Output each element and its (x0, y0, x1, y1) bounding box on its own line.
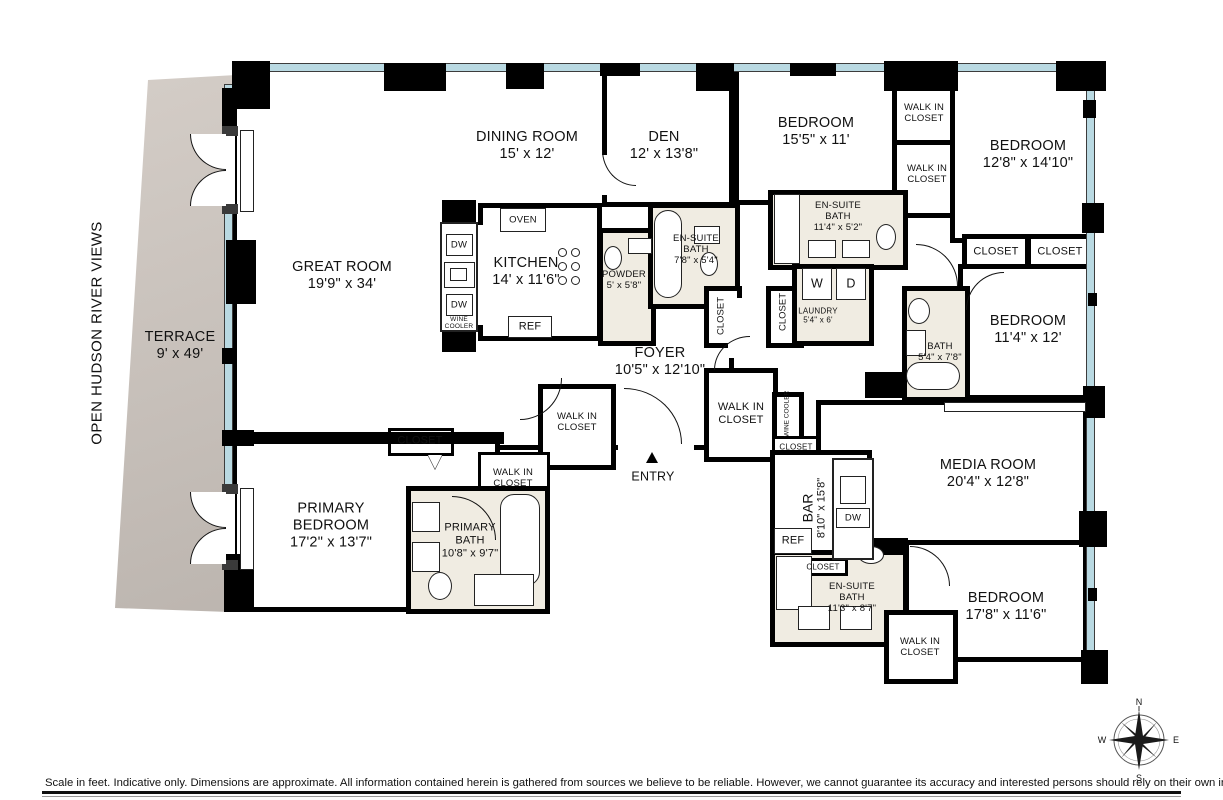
bathtub-icon (500, 494, 540, 586)
closet-label: CLOSET (779, 293, 790, 331)
room-dims: 7'8" x 5'4" (667, 256, 725, 267)
room-dims: 11'4" x 5'2" (805, 223, 871, 234)
room-name: TERRACE (145, 329, 216, 346)
dining-room-label: DINING ROOM 15' x 12' (476, 129, 578, 163)
room-dims: 11'4" x 12' (990, 330, 1066, 347)
room-dims: 5'4" x 6' (798, 316, 838, 325)
laundry-label: LAUNDRY 5'4" x 6' (798, 307, 838, 326)
walk-in-closet-label: WALK IN CLOSET (903, 163, 951, 185)
wall-segment (1083, 386, 1105, 418)
room-name: BEDROOM (990, 313, 1066, 330)
room-name: EN-SUITE BATH (667, 233, 725, 255)
bedroom-4-label: BEDROOM 17'8" x 11'6" (965, 590, 1046, 624)
wine-cooler-label: WINE COOLER (785, 397, 792, 437)
closet-label: CLOSET (717, 297, 728, 335)
wall-segment (1083, 100, 1096, 118)
terrace-door-panel (240, 130, 254, 212)
dw-label: DW (451, 299, 467, 310)
shower-icon (774, 194, 800, 264)
wall-segment (442, 200, 476, 224)
room-name: MEDIA ROOM (940, 457, 1036, 474)
stove-burner-icon (571, 248, 580, 257)
primary-bath-label: PRIMARY BATH 10'8" x 9'7" (435, 522, 505, 561)
bedroom-1-label: BEDROOM 15'5" x 11' (778, 115, 854, 149)
door-arc (916, 244, 958, 286)
compass-east: E (1173, 735, 1179, 745)
oven-label: OVEN (509, 214, 537, 225)
den-label: DEN 12' x 13'8" (630, 129, 699, 163)
ensuite-bath-den-label: EN-SUITE BATH 7'8" x 5'4" (667, 233, 725, 267)
bath-3-label: BATH 5'4" x 7'8" (918, 341, 962, 363)
powder-label: POWDER 5' x 5'8" (602, 269, 646, 291)
wall-segment (696, 63, 734, 91)
room-name: PRIMARY BEDROOM (266, 500, 396, 534)
entry-arrow-icon (646, 452, 658, 463)
room-name: POWDER (602, 269, 646, 280)
entry-label: ENTRY (631, 470, 674, 485)
footer-rule-light (42, 796, 1181, 797)
bar-label: BAR 8'10" x 15'8" (800, 478, 829, 538)
terrace-door-panel (240, 488, 254, 570)
room-name: BEDROOM (778, 115, 854, 132)
room-name: EN-SUITE BATH (820, 581, 884, 603)
room-dims: 12' x 13'8" (630, 146, 699, 163)
room-name: DEN (630, 129, 699, 146)
walk-in-closet-label: WALK IN CLOSET (482, 467, 544, 489)
ensuite-bath-4-label: EN-SUITE BATH 11'3" x 8'7" (820, 581, 884, 615)
footer-rule-dark (42, 791, 1181, 794)
compass-north: N (1136, 698, 1143, 707)
closet-label: CLOSET (397, 435, 442, 448)
toilet-icon (428, 572, 452, 600)
room-name: FOYER (615, 345, 705, 362)
disclaimer-text: Scale in feet. Indicative only. Dimensio… (45, 777, 1223, 789)
wall-segment (384, 63, 446, 91)
wall-segment (600, 63, 640, 76)
sink-icon (628, 238, 652, 254)
room-name: BEDROOM (983, 138, 1073, 155)
ensuite-bath-2-label: EN-SUITE BATH 11'4" x 5'2" (805, 200, 871, 234)
wall-segment (1056, 61, 1106, 91)
floor-plan: DW DW WINE COOLER OVEN REF W D DW REF (0, 0, 1223, 800)
room-dims: 17'2" x 13'7" (266, 535, 396, 552)
media-room-label: MEDIA ROOM 20'4" x 12'8" (940, 457, 1036, 491)
stove-burner-icon (571, 262, 580, 271)
room-dims: 19'9" x 34' (292, 276, 392, 293)
room-dims: 15'5" x 11' (778, 132, 854, 149)
stove-burner-icon (571, 276, 580, 285)
room-dims: 15' x 12' (476, 146, 578, 163)
room-name: LAUNDRY (798, 307, 838, 316)
toilet-icon (876, 224, 896, 250)
sink-basin-icon (450, 268, 467, 281)
room-dims: 11'3" x 8'7" (820, 604, 884, 615)
room-dims: 20'4" x 12'8" (940, 474, 1036, 491)
closet-callout-pointer (428, 455, 442, 469)
washer-label: W (811, 277, 823, 292)
primary-bedroom-label: PRIMARY BEDROOM 17'2" x 13'7" (266, 500, 396, 551)
wall-segment (442, 330, 476, 352)
closet-label: CLOSET (779, 442, 812, 451)
terrace-label: TERRACE 9' x 49' (145, 329, 216, 363)
closet-label: CLOSET (1037, 246, 1082, 259)
wall-segment (222, 348, 235, 364)
room-dims: 10'5" x 12'10" (615, 362, 705, 379)
shower-icon (474, 574, 534, 606)
dw-label: DW (451, 239, 467, 250)
room-name: PRIMARY BATH (435, 522, 505, 548)
bathtub-icon (906, 362, 960, 390)
toilet-icon (908, 298, 930, 324)
wall-segment (884, 61, 958, 91)
foyer-label: FOYER 10'5" x 12'10" (615, 345, 705, 379)
closet-label: CLOSET (973, 246, 1018, 259)
bedroom-2-label: BEDROOM 12'8" x 14'10" (983, 138, 1073, 172)
wall-segment (1088, 293, 1097, 306)
room-name: BAR (800, 478, 816, 538)
wall-segment (222, 88, 237, 126)
room-name: KITCHEN (492, 255, 559, 272)
bedroom-3-label: BEDROOM 11'4" x 12' (990, 313, 1066, 347)
sink-icon (842, 240, 870, 258)
compass-rose: N S W E (1097, 698, 1181, 782)
wall-segment (1079, 511, 1107, 547)
closet-label: CLOSET (806, 562, 839, 571)
toilet-icon (604, 246, 622, 270)
room-dims: 17'8" x 11'6" (965, 607, 1046, 624)
wall-segment (232, 61, 270, 109)
walk-in-closet-label: WALK IN CLOSET (715, 401, 767, 427)
kitchen-label: KITCHEN 14' x 11'6" (492, 255, 559, 289)
walk-in-closet-label: WALK IN CLOSET (900, 102, 948, 124)
room-name: BEDROOM (965, 590, 1046, 607)
room-name: BATH (918, 341, 962, 352)
wall-segment (790, 63, 836, 76)
window-strip-right (1086, 84, 1095, 662)
room-dims: 14' x 11'6" (492, 272, 559, 289)
room-dims: 12'8" x 14'10" (983, 155, 1073, 172)
wall-segment (1082, 203, 1104, 233)
dw-label: DW (845, 512, 861, 523)
room-dims: 5' x 5'8" (602, 280, 646, 291)
wall-segment (232, 432, 504, 444)
ref-label: REF (519, 321, 542, 334)
dryer-label: D (846, 277, 855, 292)
room-name: DINING ROOM (476, 129, 578, 146)
wine-cooler-label: WINE COOLER (444, 317, 474, 331)
walk-in-closet-label: WALK IN CLOSET (895, 636, 945, 658)
wall-segment (865, 372, 907, 398)
great-room-label: GREAT ROOM 19'9" x 34' (292, 259, 392, 293)
room-name: EN-SUITE BATH (805, 200, 871, 222)
room-dims: 8'10" x 15'8" (816, 478, 829, 538)
orientation-label: OPEN HUDSON RIVER VIEWS (88, 221, 105, 444)
room-name: GREAT ROOM (292, 259, 392, 276)
media-counter (944, 402, 1086, 412)
sink-icon (840, 476, 866, 504)
walk-in-closet-label: WALK IN CLOSET (552, 411, 602, 433)
compass-west: W (1098, 735, 1107, 745)
room-dims: 9' x 49' (145, 346, 216, 363)
sink-icon (808, 240, 836, 258)
room-dims: 10'8" x 9'7" (435, 547, 505, 560)
wall-segment (1088, 588, 1097, 601)
wall-segment (1081, 650, 1108, 684)
room-dims: 5'4" x 7'8" (918, 352, 962, 363)
wall-segment (226, 240, 256, 304)
wall-segment (506, 63, 544, 89)
